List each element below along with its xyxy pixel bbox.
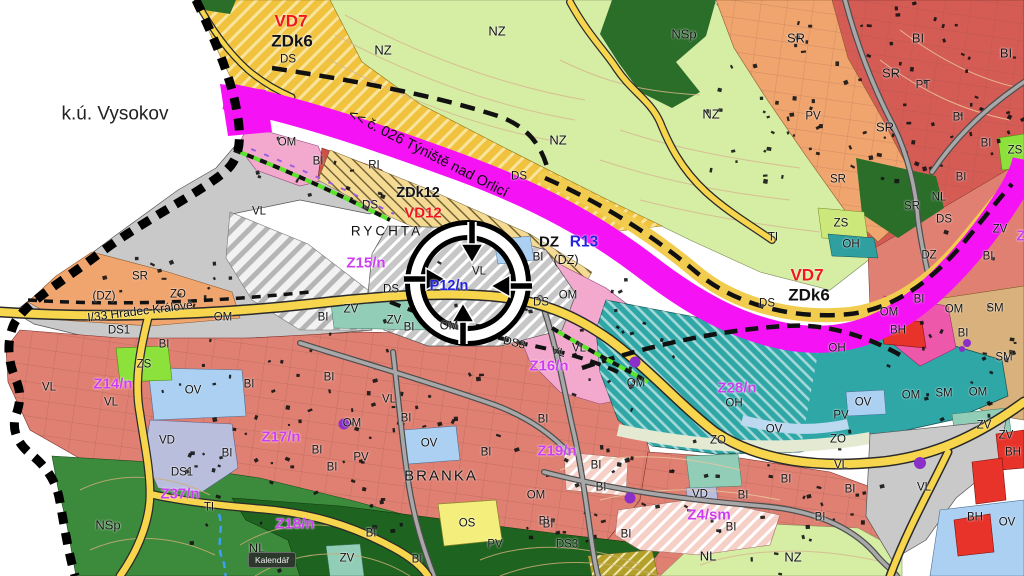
dock-tooltip: Kalendář [248, 552, 296, 568]
zoning-map-screen: k.ú. Vysokov<< č. 026 Týniště nad Orlicí… [0, 0, 1024, 576]
zoning-map-canvas[interactable] [0, 0, 1024, 576]
